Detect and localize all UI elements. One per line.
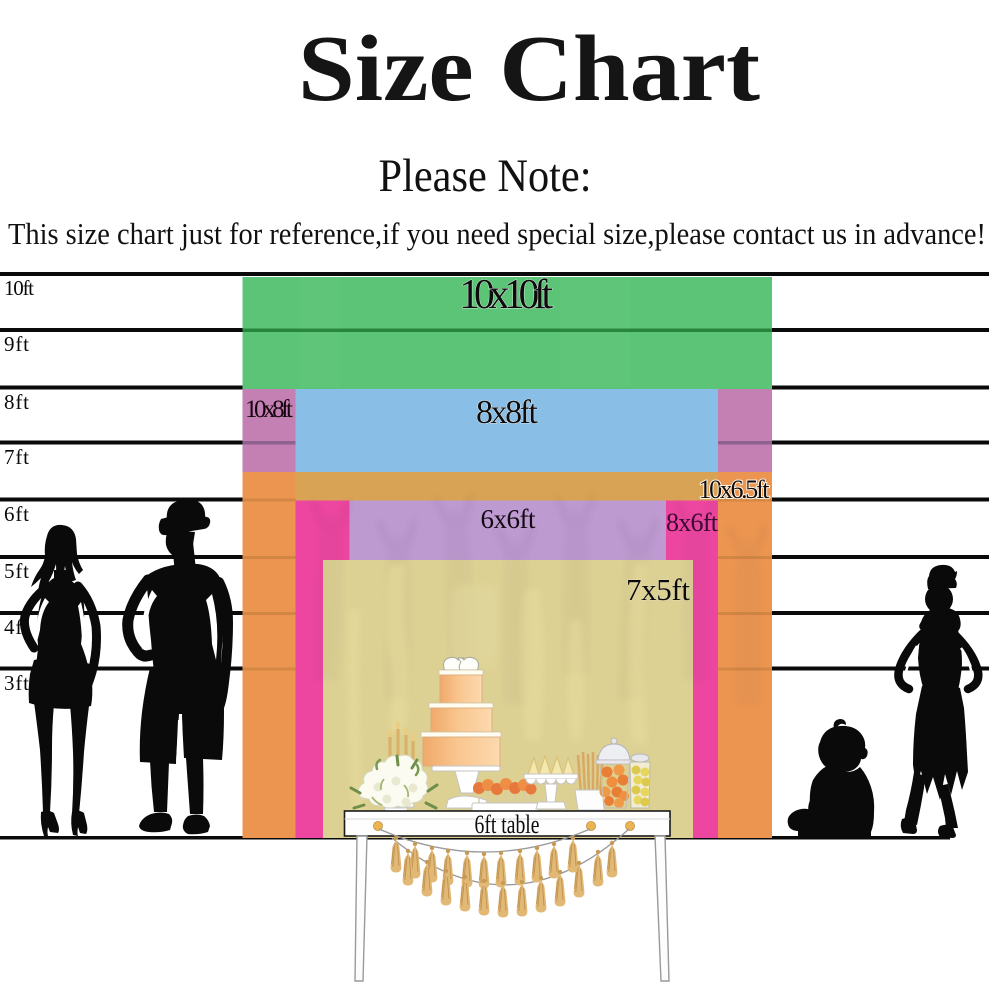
svg-text:6ft: 6ft xyxy=(4,502,29,526)
svg-text:10x10ft: 10x10ft xyxy=(459,272,553,318)
svg-text:Size Chart: Size Chart xyxy=(298,17,760,121)
svg-text:5ft: 5ft xyxy=(4,559,29,583)
svg-text:10ft: 10ft xyxy=(4,276,34,300)
svg-text:10x8ft: 10x8ft xyxy=(245,396,293,423)
svg-text:8ft: 8ft xyxy=(4,390,29,414)
svg-text:6x6ft: 6x6ft xyxy=(481,504,536,534)
svg-text:10x6.5ft: 10x6.5ft xyxy=(699,475,771,504)
svg-text:9ft: 9ft xyxy=(4,332,29,356)
svg-text:3ft: 3ft xyxy=(4,671,29,695)
svg-text:7x5ft: 7x5ft xyxy=(626,572,690,607)
svg-text:7ft: 7ft xyxy=(4,445,29,469)
svg-text:6ft table: 6ft table xyxy=(475,810,540,839)
svg-text:8x8ft: 8x8ft xyxy=(476,394,539,431)
svg-text:This size chart just for refer: This size chart just for reference,if yo… xyxy=(8,216,986,251)
svg-text:Please Note:: Please Note: xyxy=(379,150,592,202)
svg-text:8x6ft: 8x6ft xyxy=(666,508,719,537)
